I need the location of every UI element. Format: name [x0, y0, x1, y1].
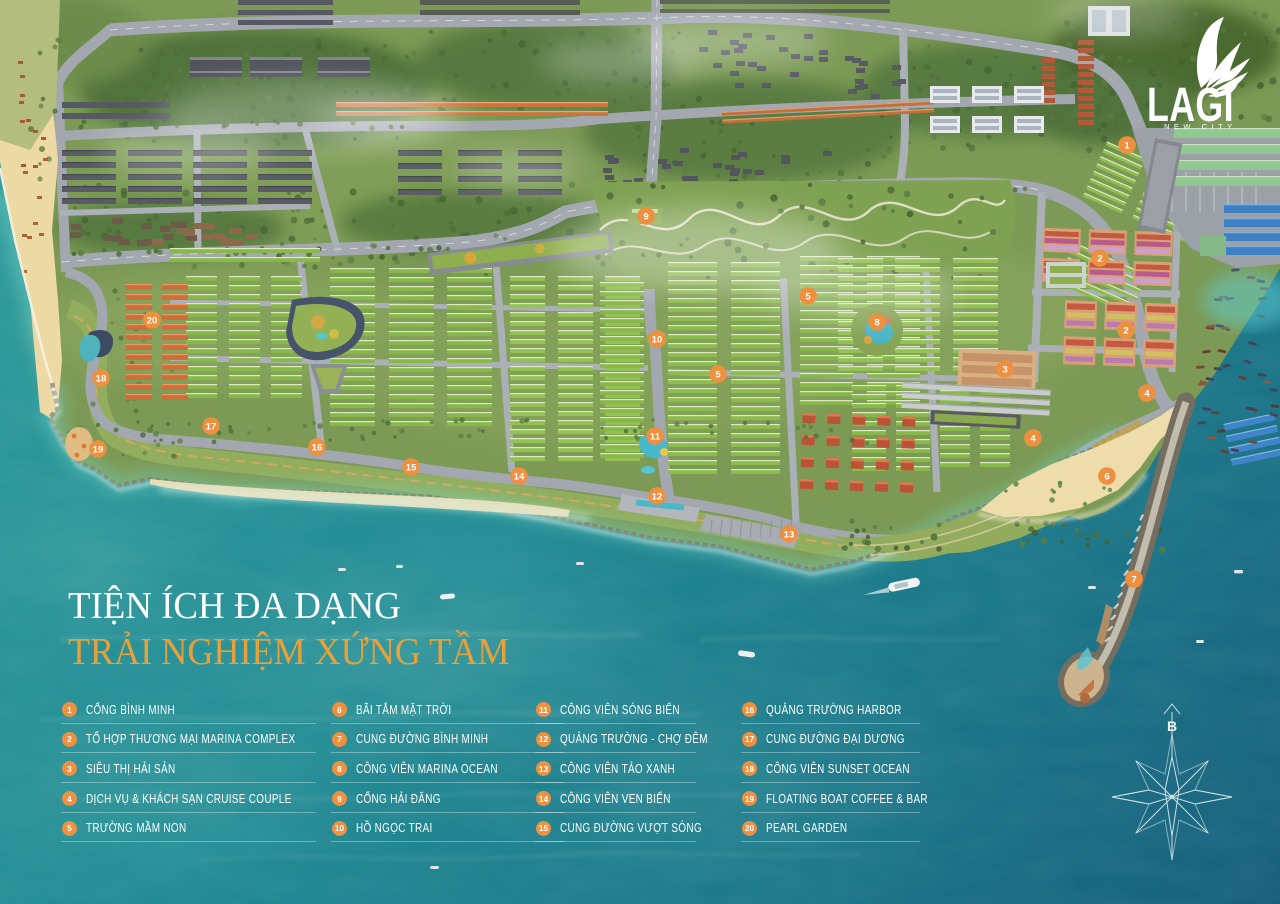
svg-text:12: 12 — [652, 491, 663, 502]
svg-text:5: 5 — [805, 291, 811, 302]
svg-text:9: 9 — [643, 211, 648, 222]
svg-text:2: 2 — [1123, 325, 1128, 336]
svg-text:16: 16 — [312, 442, 323, 453]
svg-text:6: 6 — [1104, 471, 1109, 482]
svg-text:11: 11 — [650, 431, 661, 442]
svg-text:8: 8 — [874, 317, 880, 328]
svg-text:18: 18 — [96, 373, 107, 384]
svg-text:14: 14 — [514, 471, 525, 482]
svg-text:15: 15 — [406, 462, 417, 473]
svg-text:20: 20 — [147, 315, 158, 326]
svg-text:19: 19 — [93, 444, 104, 455]
svg-text:13: 13 — [784, 529, 795, 540]
svg-text:3: 3 — [1002, 364, 1007, 375]
svg-text:2: 2 — [1097, 253, 1102, 264]
svg-text:5: 5 — [715, 369, 721, 380]
svg-text:1: 1 — [1124, 140, 1130, 151]
svg-text:10: 10 — [652, 334, 663, 345]
svg-text:7: 7 — [1131, 574, 1136, 585]
svg-text:17: 17 — [206, 421, 217, 432]
svg-text:B: B — [1167, 718, 1177, 734]
svg-text:4: 4 — [1030, 433, 1036, 444]
svg-text:4: 4 — [1144, 388, 1150, 399]
